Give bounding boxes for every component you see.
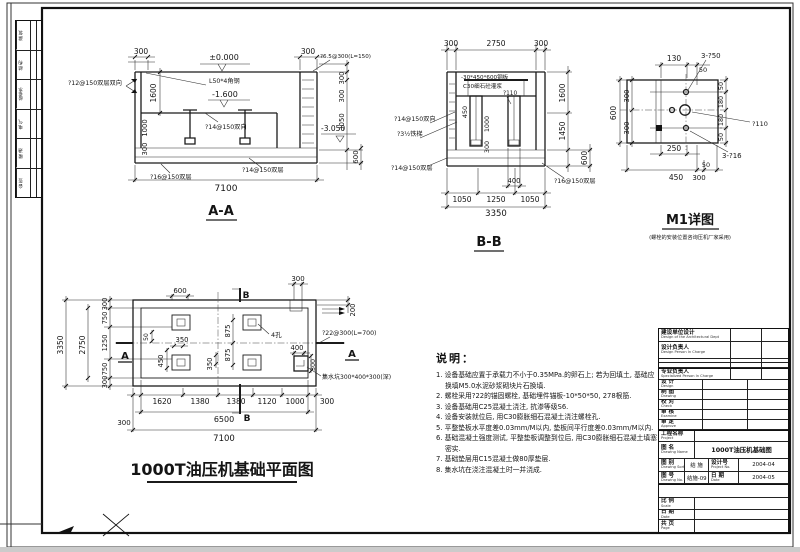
dim-label: 350 — [206, 358, 214, 371]
dim-label: 300 — [141, 143, 149, 156]
note-item: 1. 设备基础应置于承载力不小于0.35MPa.的卵石上; 若为回填土, 基础应… — [436, 370, 660, 391]
hole-label: 3-?16 — [722, 152, 742, 160]
note-item: 8. 集水坑在浇注混凝土时一并浇成. — [436, 465, 660, 476]
plan-view: 3350 2750 300 750 1250 750 300 600 300 B… — [56, 275, 391, 482]
dim-label: 600 — [580, 151, 589, 166]
sign-row-label: 电 气 — [16, 110, 26, 139]
note-item: 2. 螺栓采用?22的锚固螺栓, 基础埋件锚板-10*50*50, 278根筋. — [436, 391, 660, 402]
dim-label: 300 — [623, 122, 631, 135]
hole-label: 3-?50 — [701, 52, 721, 60]
sign-row-label: 暖 通 — [16, 139, 26, 168]
notes-heading: 说明： — [436, 350, 660, 366]
plate-label: -30*450*600钢板 — [461, 73, 509, 81]
no-value: 结施-09 — [687, 474, 706, 482]
dim-label: 50 — [143, 333, 150, 341]
dim-label: 180 — [717, 96, 725, 108]
dim-label: 400 — [508, 177, 521, 185]
cut-mark-b: B — [243, 291, 250, 301]
dim-label: 50 — [702, 161, 710, 169]
detail-m1-title: M1详图 — [666, 212, 714, 228]
dim-label: 1380 — [226, 397, 245, 406]
detail-m1: 130 3-?50 50 600 300 300 50 180 180 50 ?… — [609, 52, 768, 241]
dim-label: 600 — [609, 106, 618, 121]
sign-row-label: 建 筑 — [16, 21, 26, 50]
dim-label: 1000 — [483, 116, 491, 132]
title-block: 建设单位设计Design of the Architectural Dept 设… — [658, 328, 789, 533]
rebar-label: ?14@150双层 — [391, 164, 433, 172]
corner-notch — [290, 300, 302, 311]
dim-label: 300 — [444, 39, 459, 48]
sump-label: 集水坑300*400*300(深) — [322, 373, 391, 381]
ladder-rungs — [449, 84, 455, 138]
dim-label: 7100 — [215, 184, 238, 194]
dim-label: 300 — [338, 90, 346, 103]
dim-label: 50 — [717, 133, 725, 141]
dim-label: 1600 — [558, 83, 567, 102]
dim-label: 1380 — [190, 397, 209, 406]
window-bottom-edge — [0, 547, 800, 552]
dim-label: 200 — [349, 304, 357, 317]
dim-label: 1050 — [520, 195, 539, 204]
dim-label: 750 — [101, 363, 109, 376]
sump-pit — [294, 356, 308, 371]
bolt-mark — [656, 125, 662, 131]
level-symbol — [321, 134, 356, 142]
level-label: -3.050 — [321, 124, 345, 133]
level-symbol — [200, 64, 250, 71]
rebar-label: ?14@150双向 — [394, 115, 436, 123]
dim-label: 300 — [623, 90, 631, 103]
dim-label: 1120 — [257, 397, 276, 406]
dim-label: 450 — [669, 173, 684, 182]
dim-label: 600 — [173, 287, 186, 295]
dim-label: 750 — [101, 312, 109, 325]
note-item: 3. 设备基础用C25混凝土浇注, 抗渗等级S6. — [436, 402, 660, 413]
section-aa: 300 ±0.000 300 ?6.5@300(L=150) ?12@150双层… — [68, 47, 371, 220]
rebar-label: ?14@150双层 — [242, 166, 284, 174]
sign-row-label: 结 构 — [16, 51, 26, 80]
dim-label: 300 — [534, 39, 549, 48]
dim-label: 400 — [291, 344, 304, 352]
level-symbol — [208, 100, 250, 107]
notes-block: 说明： 1. 设备基础应置于承载力不小于0.35MPa.的卵石上; 若为回填土,… — [436, 350, 660, 475]
dim-label: 6500 — [214, 415, 234, 424]
cut-mark-b: B — [244, 414, 251, 424]
dim-label: 130 — [667, 54, 682, 63]
dim-label: 1050 — [452, 195, 471, 204]
dim-label: 300 — [310, 359, 317, 371]
dim-label: 50 — [717, 82, 725, 90]
rebar-label: ?14@150双向 — [205, 123, 247, 131]
anchor-bolt — [183, 110, 197, 144]
dim-label: 300 — [301, 47, 316, 56]
dim-label: 450 — [461, 106, 469, 118]
drawing-name-value: 1000T油压机基础图 — [697, 445, 786, 454]
note-item: 5. 平整垫板水平度差0.03mm/M以内, 垫板间平行度差0.03mm/M以内… — [436, 423, 660, 434]
dim-label: 3350 — [56, 335, 65, 354]
dim-label: 1450 — [558, 121, 567, 140]
sign-row-label: 给排水 — [16, 80, 26, 109]
dim-label: 600 — [352, 150, 360, 163]
rebar-label: ?6.5@300(L=150) — [320, 54, 371, 60]
dia-label: ?110 — [752, 120, 768, 128]
rebar-label: ?16@150双层 — [554, 177, 596, 185]
dim-label: 300 — [338, 72, 346, 85]
cut-mark-a: A — [121, 351, 129, 362]
dim-label: 300 — [291, 275, 304, 283]
dim-label: 3350 — [485, 209, 507, 219]
dim-label: 1620 — [152, 397, 171, 406]
dim-label: 7100 — [213, 434, 235, 444]
grout-label: C30细石砼灌浆 — [463, 82, 502, 90]
rebar-label: L50*4角钢 — [209, 77, 240, 85]
dim-label: 2750 — [78, 335, 87, 354]
section-bb: 300 2750 300 -30*450*600钢板 C30细石砼灌浆 ?110… — [391, 39, 596, 251]
sort-value: 结 施 — [687, 461, 706, 469]
section-aa-title: A-A — [208, 204, 234, 219]
holes-label: 4孔 — [271, 331, 282, 339]
note-item: 7. 基础垫层用C15混凝土做80厚垫层. — [436, 454, 660, 465]
date-value: 2004-05 — [741, 475, 786, 481]
dim-label: 1250 — [101, 335, 109, 352]
dim-label: 875 — [224, 349, 232, 362]
dim-label: 300 — [134, 47, 149, 56]
note-item: 6. 基础混凝土强度测试, 平整垫板调整到位后, 用C30膨胀细石混凝土填塞密实… — [436, 433, 660, 454]
plan-title: 1000T油压机基础平面图 — [130, 460, 313, 479]
signature-strip: 建 筑 结 构 给排水 电 气 暖 通 会 签 — [15, 20, 42, 198]
dim-label: 300 — [117, 419, 130, 427]
level-label: -1.600 — [212, 90, 238, 99]
section-bb-title: B-B — [476, 235, 501, 250]
projno-value: 2004-04 — [741, 462, 786, 468]
note-item: 4. 设备安装就位后, 用C30膨胀细石混凝土浇注螺栓孔. — [436, 412, 660, 423]
dim-label: 1000 — [141, 119, 149, 136]
dim-label: 300 — [320, 397, 335, 406]
dia-label: ?110 — [503, 91, 517, 97]
dim-label: 450 — [157, 355, 165, 368]
dim-label: 300 — [101, 376, 109, 389]
dim-label: 250 — [667, 144, 682, 153]
rebar-label: ?3½铁梯 — [397, 130, 423, 138]
dim-label: 300 — [101, 298, 109, 311]
dim-label: 1250 — [486, 195, 505, 204]
dim-label: 2750 — [486, 39, 505, 48]
dim-label: 50 — [699, 66, 707, 74]
rebar-label: ?16@150双层 — [150, 173, 192, 181]
detail-m1-subtitle: (螺栓的安装位置咨询压机厂家采用) — [649, 233, 731, 241]
rebar-label: ?22@300(L=700) — [322, 329, 376, 337]
drawing-sheet: 300 ±0.000 300 ?6.5@300(L=150) ?12@150双层… — [0, 0, 800, 552]
sign-row-label: 会 签 — [16, 169, 26, 198]
dim-label: 300 — [692, 174, 705, 182]
dim-label: 300 — [483, 141, 491, 153]
rebar-label: ?12@150双层双向 — [68, 79, 122, 87]
dim-label: 180 — [717, 114, 725, 126]
dim-label: 350 — [176, 336, 189, 344]
dim-label: 1000 — [285, 397, 304, 406]
dim-label: 875 — [224, 325, 232, 338]
cut-mark-a: A — [348, 349, 356, 360]
level-label: ±0.000 — [209, 53, 239, 62]
dim-label: 1600 — [149, 83, 158, 102]
